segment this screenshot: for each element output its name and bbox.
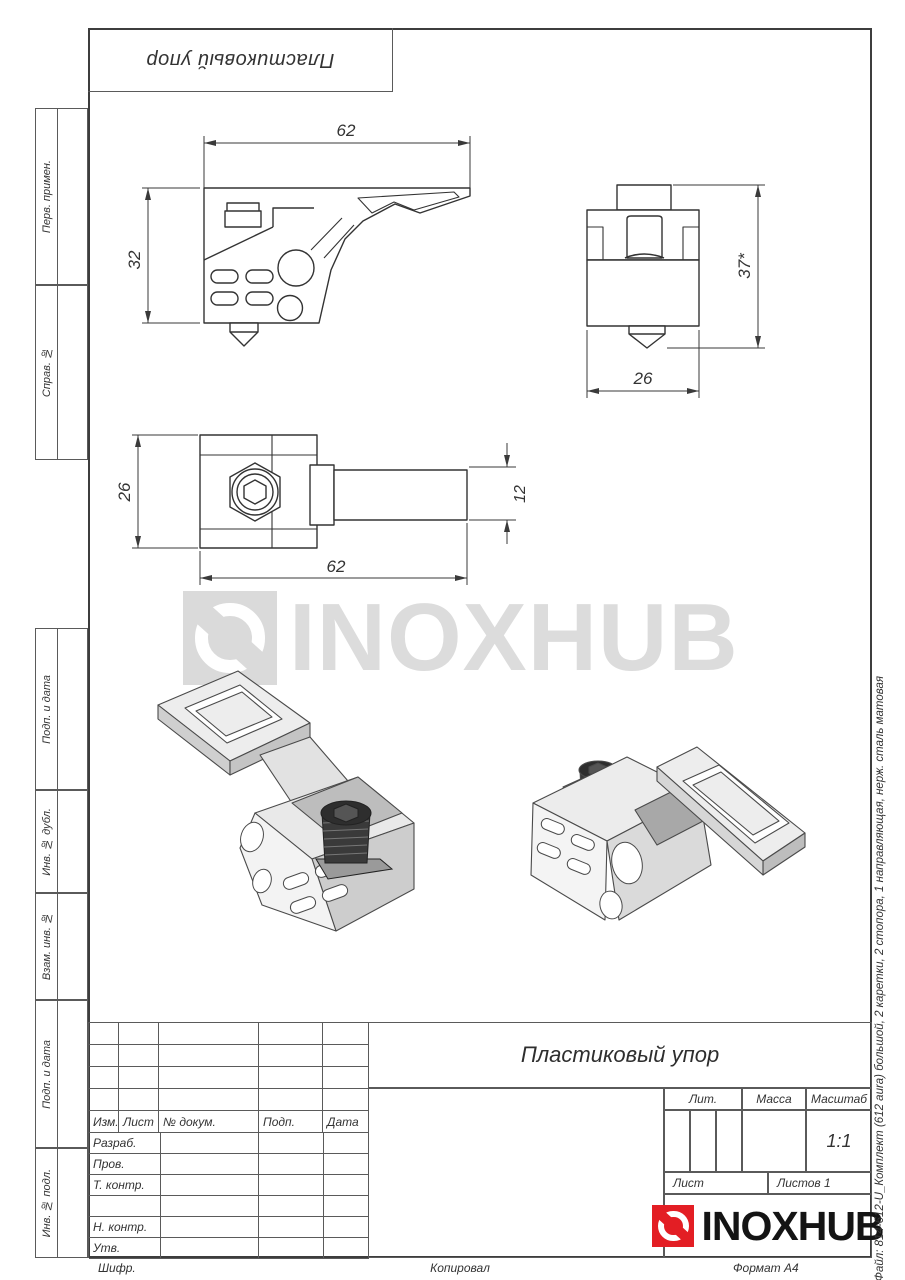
sheet-cell: Лист <box>664 1172 768 1194</box>
mass-header: Масса <box>742 1088 806 1110</box>
top-stamp: Пластиковый упор <box>88 28 393 92</box>
dim-front-height: 32 <box>125 250 144 269</box>
logo-cell: INOXHUB <box>664 1194 872 1258</box>
front-view: 62 32 <box>118 118 510 403</box>
signature-rows: Разраб. Пров. Т. контр. Н. контр. Утв. <box>88 1132 368 1258</box>
margin-box-podp-data-1: Подп. и дата <box>35 628 88 790</box>
col-list: Лист <box>119 1111 159 1133</box>
cipher-label: Шифр. <box>98 1261 136 1275</box>
top-view: 26 12 62 <box>118 425 548 615</box>
margin-box-perv-primen: Перв. примен. <box>35 108 88 285</box>
margin-label: Подп. и дата <box>41 1040 53 1109</box>
designation-cell <box>368 1088 664 1258</box>
col-podp: Подп. <box>259 1111 323 1133</box>
row-empty <box>89 1196 161 1217</box>
top-stamp-text: Пластиковый упор <box>146 48 334 71</box>
margin-box-inv-podl: Инв. № подл. <box>35 1148 88 1258</box>
title-block-header-row: Изм. Лист № докум. Подп. Дата <box>88 1110 368 1132</box>
col-data: Дата <box>323 1111 369 1133</box>
lit-subcell-2 <box>690 1110 716 1172</box>
row-prov: Пров. <box>89 1154 161 1175</box>
margin-label: Инв. № подл. <box>41 1169 53 1237</box>
margin-label: Инв. № дубл. <box>41 808 53 876</box>
margin-label: Подп. и дата <box>41 675 53 744</box>
dim-top-width: 62 <box>327 557 346 576</box>
copied-label: Копировал <box>380 1261 540 1275</box>
dim-side-height: 37* <box>735 252 754 279</box>
margin-box-podp-data-2: Подп. и дата <box>35 1000 88 1148</box>
mass-value-cell <box>742 1110 806 1172</box>
col-dokum: № докум. <box>159 1111 259 1133</box>
scale-value-cell: 1:1 <box>806 1110 872 1172</box>
row-utv: Утв. <box>89 1238 161 1259</box>
inoxhub-logo-icon <box>652 1205 694 1247</box>
part-title: Пластиковый упор <box>368 1022 872 1088</box>
file-info-text: Файл: 814-612-U_Комплект (612 aura) боль… <box>875 676 887 1280</box>
dim-top-arm-height: 12 <box>512 485 529 503</box>
margin-box-inv-dubl: Инв. № дубл. <box>35 790 88 893</box>
margin-label: Взам. инв. № <box>41 912 53 980</box>
lit-subcell-1 <box>664 1110 690 1172</box>
dim-side-width: 26 <box>633 369 653 388</box>
isometric-view-2 <box>505 715 815 955</box>
col-izm: Изм. <box>89 1111 119 1133</box>
lit-header: Лит. <box>664 1088 742 1110</box>
isometric-view-1 <box>140 663 435 955</box>
row-nkontr: Н. контр. <box>89 1217 161 1238</box>
margin-label: Справ. № <box>41 347 53 397</box>
row-razrab: Разраб. <box>89 1133 161 1154</box>
inoxhub-brand: INOXHUB <box>652 1205 883 1247</box>
file-info-vertical: Файл: 814-612-U_Комплект (612 aura) боль… <box>875 700 901 1258</box>
brand-text: INOXHUB <box>701 1206 883 1247</box>
margin-label: Перв. примен. <box>41 160 53 233</box>
scale-header: Масштаб <box>806 1088 872 1110</box>
revision-table <box>88 1022 368 1110</box>
sheets-cell: Листов 1 <box>768 1172 872 1194</box>
drawing-sheet: INOXHUB Пластиковый упор Перв. примен. С… <box>0 0 905 1280</box>
margin-box-sprav-no: Справ. № <box>35 285 88 460</box>
dim-top-height: 26 <box>118 482 134 502</box>
lit-subcell-3 <box>716 1110 742 1172</box>
side-view: 37* 26 <box>565 170 815 420</box>
margin-box-vzam-inv: Взам. инв. № <box>35 893 88 1000</box>
dim-front-width: 62 <box>337 121 356 140</box>
format-label: Формат А4 <box>733 1261 799 1275</box>
row-tkontr: Т. контр. <box>89 1175 161 1196</box>
